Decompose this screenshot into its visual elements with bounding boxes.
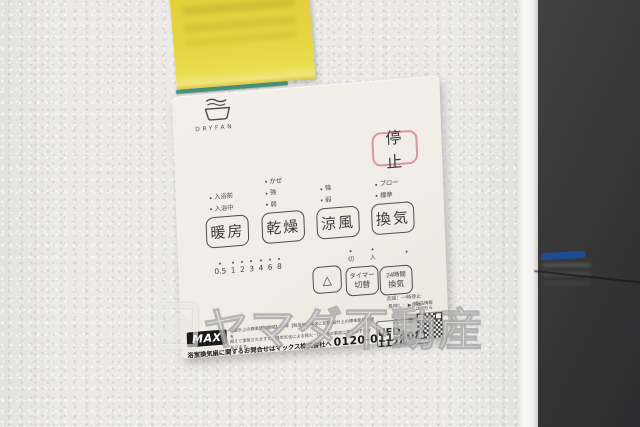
vent-24h-button[interactable]: 24時間 換気 (379, 264, 413, 296)
ventilation-button[interactable]: 換気 (371, 201, 415, 235)
dry-button[interactable]: 乾燥 (261, 210, 305, 244)
select-triangle-button[interactable]: △ (312, 265, 342, 294)
indicator-label: 標準 (375, 187, 420, 202)
yellow-sticky-note (168, 0, 316, 90)
qr-caption: 製品情報 はこちら (415, 300, 445, 313)
dark-door-edge (538, 0, 640, 427)
qr-code (417, 312, 443, 339)
mode-column-cool: 強 弱 涼風 (311, 164, 367, 240)
led-dot (210, 208, 212, 210)
led-dot (265, 192, 267, 194)
led-dot (269, 259, 271, 261)
indicator-label: 弱 (321, 191, 366, 206)
off-marker: 切 (348, 250, 354, 263)
photo-scene: DRYFAN 停止 入浴前 入浴中 暖房 かぜ 強 弱 乾燥 強 弱 (0, 0, 640, 427)
brand-logo: DRYFAN (194, 94, 255, 133)
note-showthrough-text (184, 16, 296, 33)
scale-item: 0.5 (214, 262, 226, 276)
note-showthrough-text (182, 0, 294, 16)
dryfan-tub-icon (200, 96, 235, 123)
led-dot (406, 251, 408, 253)
scale-item: 4 (258, 259, 263, 272)
led-dot (278, 258, 280, 260)
led-dot (250, 260, 252, 262)
dryfan-control-panel: DRYFAN 停止 入浴前 入浴中 暖房 かぜ 強 弱 乾燥 強 弱 (172, 76, 449, 360)
led-dot (232, 262, 234, 264)
operation-hints: 点滅：一時停止 長押し：▶停止 (345, 294, 421, 315)
scale-item: 8 (277, 258, 282, 271)
timer-hour-scale: 0.5 1 2 3 4 6 8 (214, 258, 282, 276)
scale-item: 1 (230, 261, 235, 274)
cool-breeze-button[interactable]: 涼風 (316, 205, 360, 239)
led-dot (376, 195, 378, 197)
led-dot (375, 184, 377, 186)
vent-24h-line2: 換気 (388, 279, 404, 289)
blue-label-sticker (541, 251, 585, 260)
mode-column-dry: かぜ 強 弱 乾燥 (256, 168, 312, 244)
heating-button[interactable]: 暖房 (205, 214, 249, 248)
led-dot (210, 197, 212, 199)
wall-corner-trim (517, 0, 538, 427)
led-dot (320, 188, 322, 190)
indicator-label: 入浴中 (210, 200, 255, 215)
led-dot (266, 204, 268, 206)
scale-item: 2 (240, 261, 245, 274)
timer-onoff-markers: 切 入 (348, 248, 376, 263)
led-dot (219, 263, 221, 265)
timer-toggle-button[interactable]: タイマー 切替 (345, 265, 379, 297)
led-dot (265, 181, 267, 183)
scale-item: 3 (249, 260, 254, 273)
mode-column-heating: 入浴前 入浴中 暖房 (200, 173, 256, 249)
brand-name: DRYFAN (195, 121, 255, 133)
note-showthrough-text (185, 31, 297, 47)
on-marker: 入 (369, 248, 375, 261)
led-dot (350, 250, 352, 252)
timer-toggle-line2: 切替 (354, 280, 370, 290)
indicator-label: 弱 (266, 196, 311, 211)
led-dot (260, 259, 262, 261)
led-dot (321, 199, 323, 201)
faded-label-text (543, 263, 591, 305)
mode-column-vent: ブロー 標準 換気 (365, 159, 421, 235)
scale-item: 6 (267, 258, 272, 271)
led-dot (241, 261, 243, 263)
led-dot (371, 248, 373, 250)
